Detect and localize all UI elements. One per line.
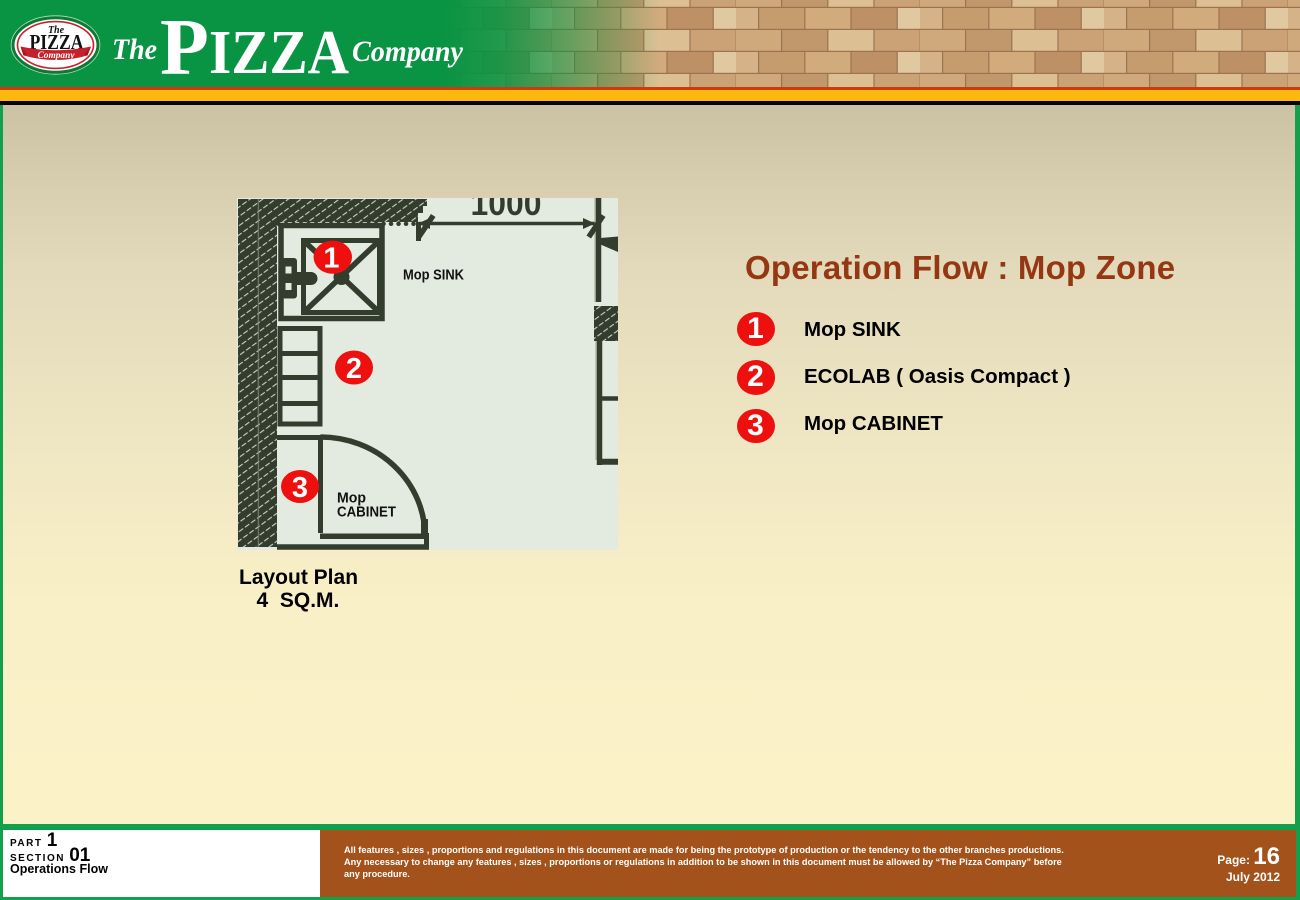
svg-text:P: P [160, 4, 209, 90]
svg-text:3: 3 [292, 472, 308, 504]
svg-text:Mop SINK: Mop SINK [403, 268, 464, 284]
svg-text:Company: Company [352, 35, 464, 68]
svg-text:1: 1 [323, 242, 339, 274]
svg-text:2: 2 [346, 353, 362, 385]
svg-text:Company: Company [38, 51, 76, 61]
svg-text:The: The [112, 33, 157, 66]
svg-text:1000: 1000 [471, 198, 542, 223]
svg-text:CABINET: CABINET [337, 505, 396, 521]
svg-text:IZZA: IZZA [209, 19, 349, 87]
